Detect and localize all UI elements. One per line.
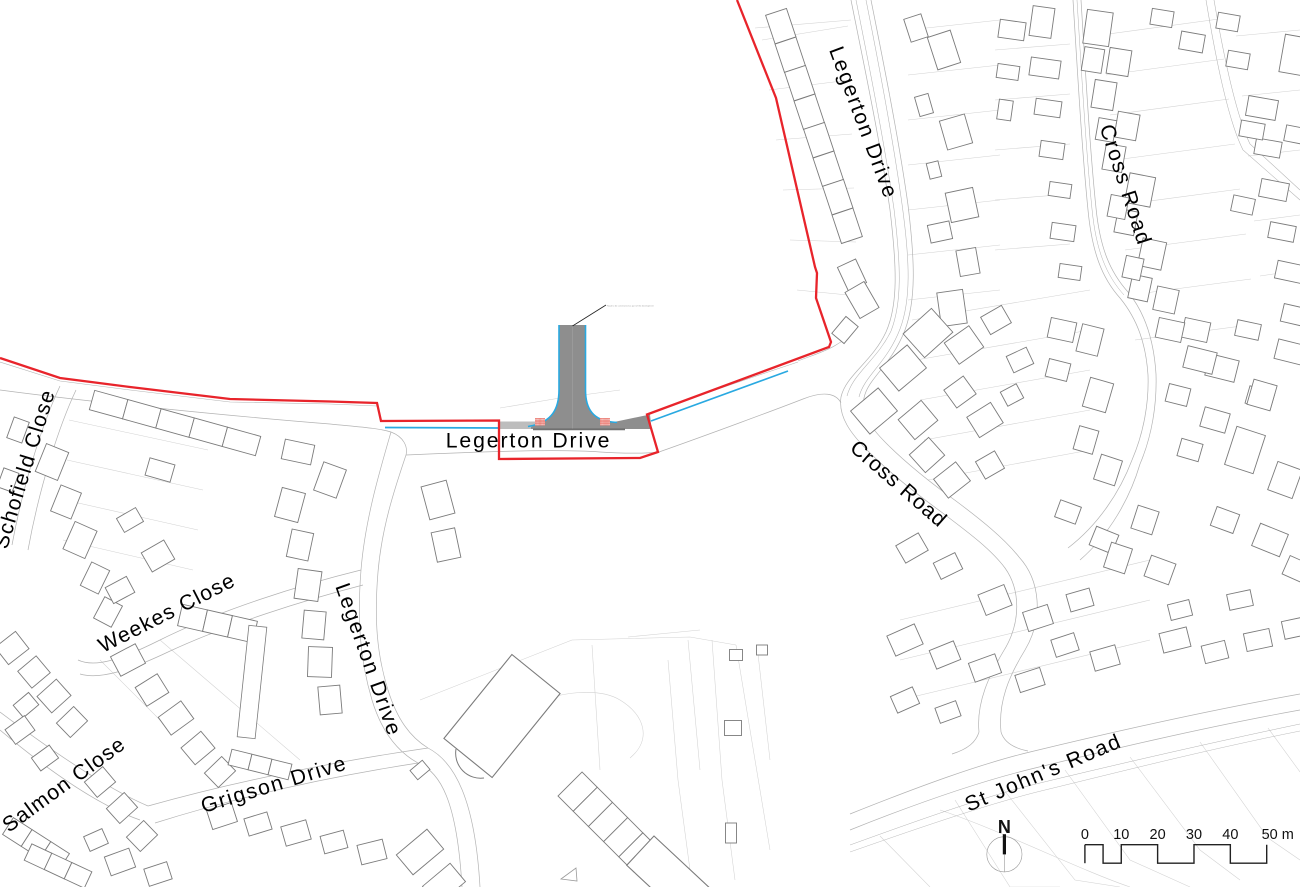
svg-text:Legerton Drive: Legerton Drive	[446, 430, 612, 453]
svg-text:20: 20	[1150, 827, 1166, 843]
svg-text:N: N	[998, 817, 1011, 837]
svg-text:30: 30	[1186, 827, 1202, 843]
svg-text:50 m: 50 m	[1262, 827, 1294, 843]
svg-text:Road to be constructed as part: Road to be constructed as part of the de…	[607, 305, 654, 308]
svg-text:40: 40	[1222, 827, 1238, 843]
svg-text:0: 0	[1081, 827, 1089, 843]
svg-text:10: 10	[1113, 827, 1129, 843]
